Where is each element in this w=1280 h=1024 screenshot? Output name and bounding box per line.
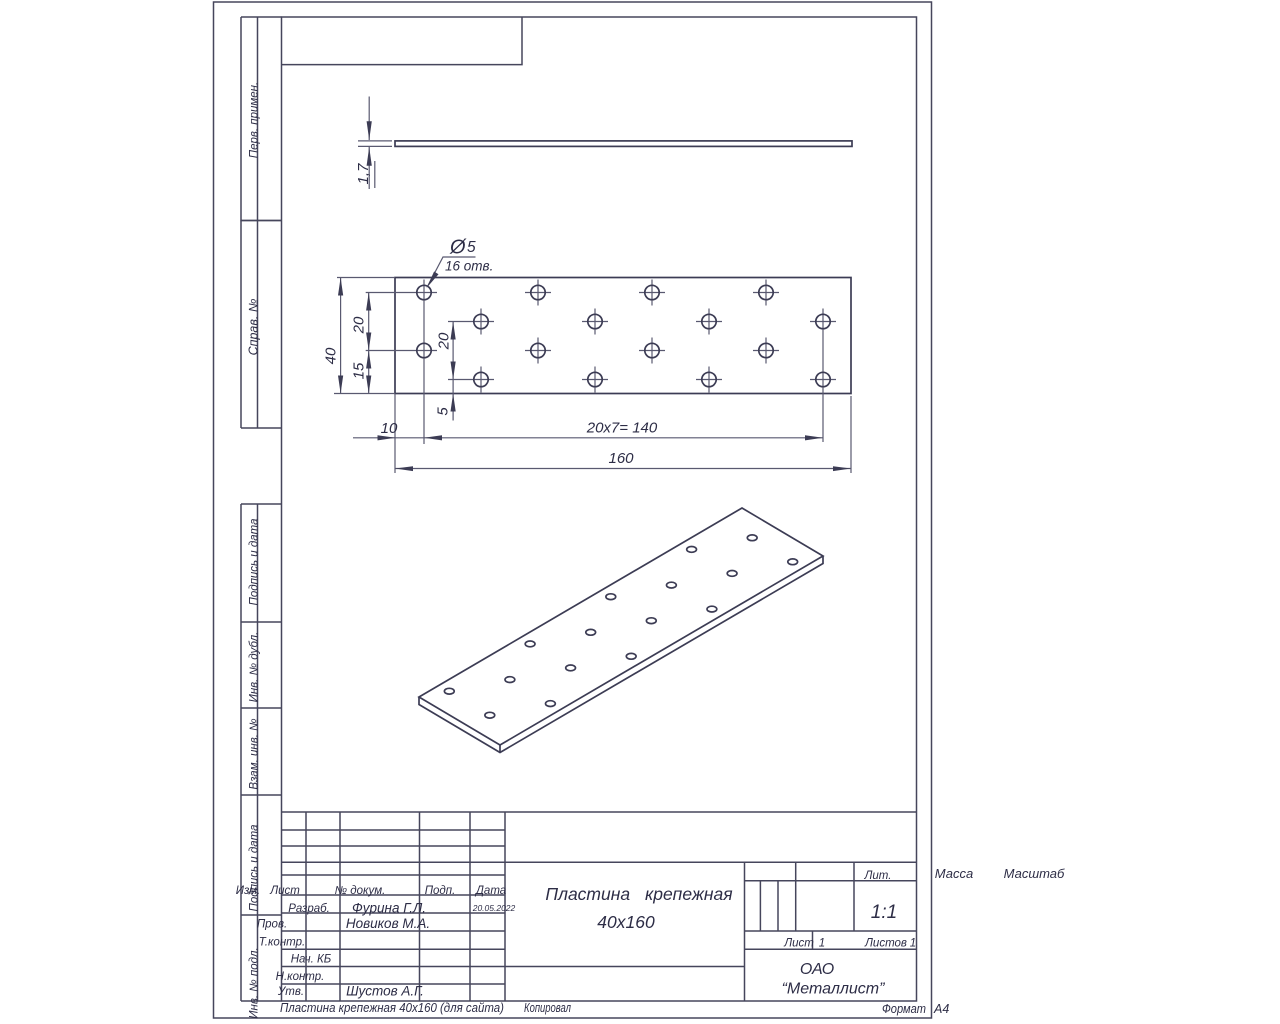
svg-text:Н.контр.: Н.контр. bbox=[276, 971, 325, 983]
svg-text:Масса: Масса bbox=[935, 866, 973, 881]
svg-text:Взам. инв. №: Взам. инв. № bbox=[249, 718, 261, 790]
svg-text:20: 20 bbox=[436, 332, 453, 350]
svg-text:160: 160 bbox=[608, 450, 634, 467]
svg-text:Фурина Г.Л.: Фурина Г.Л. bbox=[352, 901, 426, 916]
svg-text:Масштаб: Масштаб bbox=[1004, 866, 1065, 881]
svg-text:16 отв.: 16 отв. bbox=[445, 259, 493, 274]
svg-text:Разраб.: Разраб. bbox=[288, 903, 330, 915]
svg-text:Лит.: Лит. bbox=[864, 870, 892, 882]
svg-text:40: 40 bbox=[323, 347, 340, 364]
svg-text:Пров.: Пров. bbox=[257, 919, 287, 931]
svg-text:5: 5 bbox=[467, 239, 476, 256]
svg-text:10: 10 bbox=[381, 420, 398, 437]
svg-text:1: 1 bbox=[910, 938, 916, 950]
svg-text:Новиков М.А.: Новиков М.А. bbox=[346, 916, 430, 931]
svg-text:А4: А4 bbox=[933, 1002, 949, 1016]
svg-text:Утв.: Утв. bbox=[277, 986, 304, 998]
svg-text:Инв. № подл.: Инв. № подл. bbox=[249, 947, 261, 1018]
svg-text:ОАО: ОАО bbox=[800, 961, 834, 978]
svg-text:15: 15 bbox=[351, 362, 368, 379]
svg-text:Лист: Лист bbox=[269, 885, 300, 897]
svg-text:Листов: Листов bbox=[864, 938, 907, 950]
svg-text:Инв. № дубл.: Инв. № дубл. bbox=[249, 632, 261, 703]
svg-text:40х160: 40х160 bbox=[597, 912, 655, 932]
svg-text:Т.контр.: Т.контр. bbox=[259, 937, 305, 949]
svg-text:Дата: Дата bbox=[474, 885, 506, 897]
svg-text:“Металлист”: “Металлист” bbox=[782, 981, 886, 998]
svg-text:Ø: Ø bbox=[449, 237, 467, 259]
svg-text:Пластина крепежная: Пластина крепежная bbox=[545, 884, 732, 904]
svg-text:Перв. примен.: Перв. примен. bbox=[249, 82, 261, 158]
svg-text:Подпись и дата: Подпись и дата bbox=[249, 825, 261, 912]
svg-text:Нач. КБ: Нач. КБ bbox=[291, 954, 332, 966]
svg-text:5: 5 bbox=[435, 407, 452, 416]
svg-text:Копировал: Копировал bbox=[524, 1001, 571, 1015]
svg-text:Подп.: Подп. bbox=[425, 885, 456, 897]
svg-text:Справ. №: Справ. № bbox=[247, 298, 261, 355]
svg-text:1,7: 1,7 bbox=[355, 163, 372, 185]
svg-text:Шустов А.Г.: Шустов А.Г. bbox=[346, 984, 424, 999]
svg-text:Изм.: Изм. bbox=[236, 885, 261, 897]
svg-text:20х7= 140: 20х7= 140 bbox=[586, 419, 658, 436]
svg-text:Лист: Лист bbox=[783, 938, 814, 950]
svg-text:№ докум.: № докум. bbox=[335, 885, 386, 897]
svg-text:20: 20 bbox=[351, 316, 368, 334]
svg-text:Формат: Формат bbox=[882, 1002, 926, 1016]
svg-text:Пластина крепежная 40х160 (для: Пластина крепежная 40х160 (для сайта) bbox=[280, 1001, 504, 1015]
svg-text:Подпись и дата: Подпись и дата bbox=[249, 519, 261, 606]
svg-text:1:1: 1:1 bbox=[871, 902, 897, 923]
svg-text:1: 1 bbox=[819, 938, 825, 950]
svg-text:20.05.2022: 20.05.2022 bbox=[472, 903, 516, 913]
